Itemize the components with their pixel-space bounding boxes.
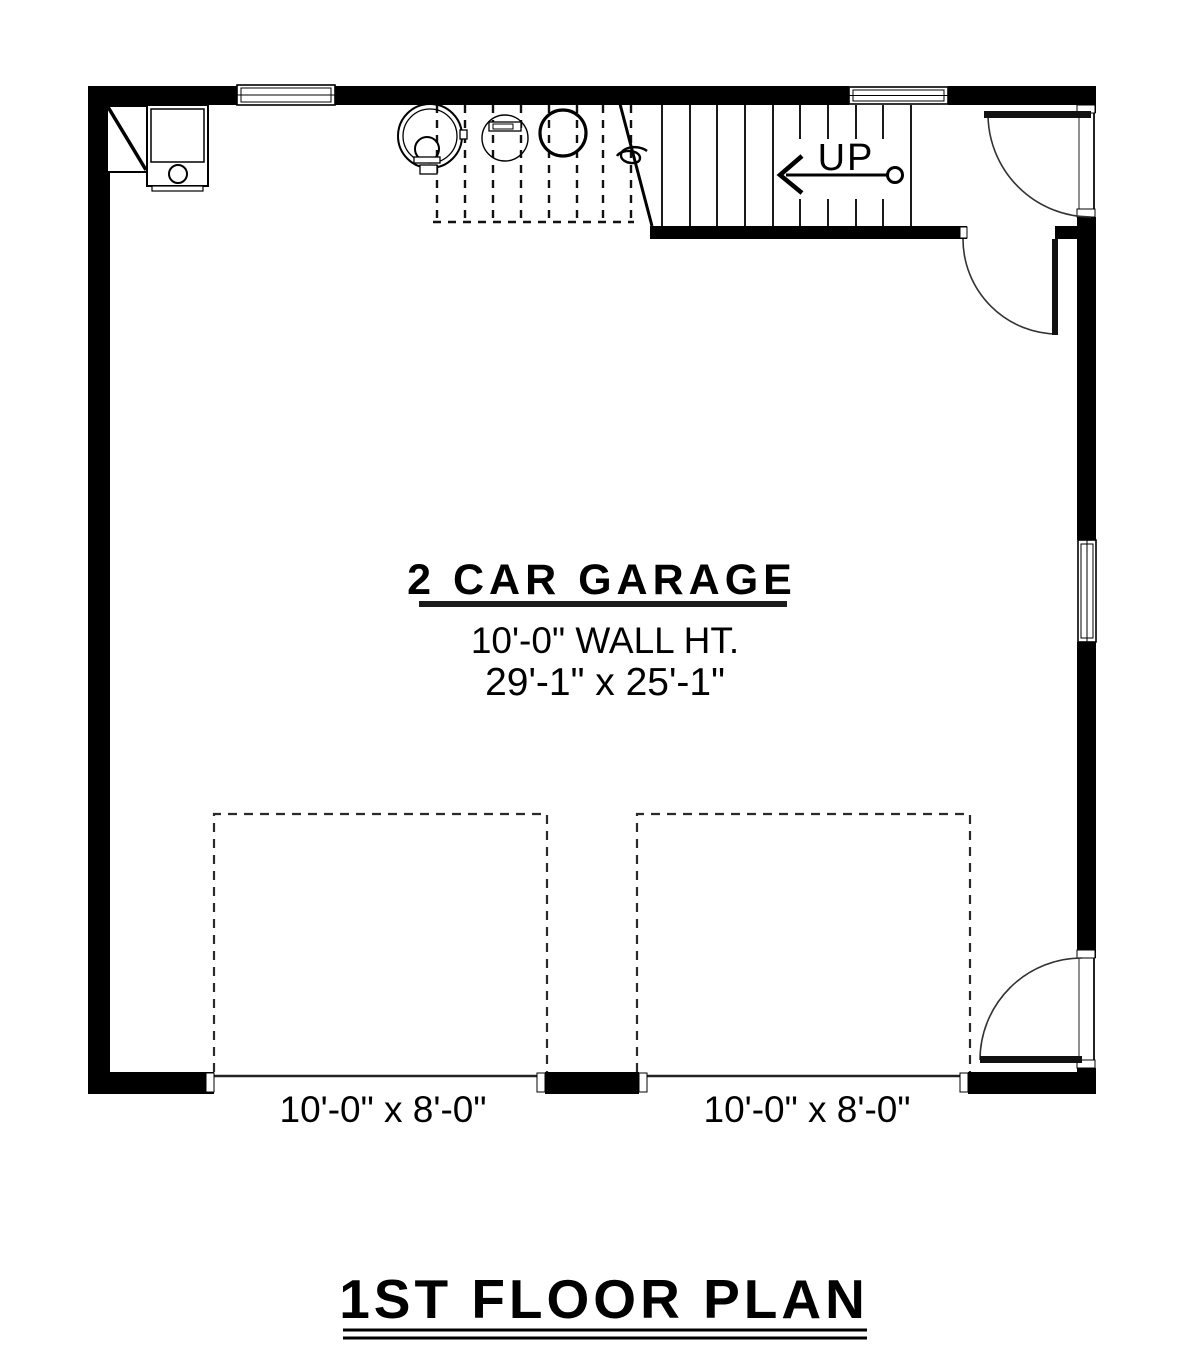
stairs-dashed-treads bbox=[433, 105, 634, 222]
stairs-break-line bbox=[617, 104, 652, 226]
window-top-left bbox=[237, 85, 335, 105]
floor-plan-sheet: UP bbox=[0, 0, 1200, 1369]
stair-door-hinge-stub bbox=[1055, 226, 1077, 239]
bottom-wall-right bbox=[968, 1072, 1096, 1094]
equipment bbox=[107, 104, 586, 191]
stair-wall bbox=[650, 226, 967, 239]
door-swing-arc bbox=[980, 958, 1082, 1060]
room-label-underline bbox=[419, 601, 787, 607]
right-wall-bottom bbox=[1077, 1068, 1096, 1094]
garage-door-left-outline bbox=[214, 814, 547, 1072]
floor-plan-drawing: UP bbox=[0, 0, 1200, 1369]
room-label: 2 CAR GARAGE bbox=[407, 556, 797, 604]
entry-door-top-right bbox=[984, 111, 1091, 217]
room-dimensions-label: 29'-1" x 25'-1" bbox=[485, 661, 725, 704]
window-right-wall bbox=[1078, 540, 1096, 642]
left-wall bbox=[88, 86, 110, 1094]
window-top-right bbox=[849, 87, 948, 104]
top-wall-middle bbox=[335, 86, 849, 105]
furnace-icon bbox=[147, 105, 208, 191]
right-wall-upper bbox=[1077, 217, 1096, 540]
sheet-title: 1ST FLOOR PLAN bbox=[339, 1268, 869, 1330]
bottom-wall-pier bbox=[545, 1072, 639, 1094]
garage-door-right-outline bbox=[637, 814, 970, 1072]
right-wall-lower bbox=[1077, 642, 1096, 958]
door-swing-arc bbox=[988, 114, 1091, 217]
garage-door-dashed-outlines bbox=[214, 814, 970, 1072]
wall-height-label: 10'-0" WALL HT. bbox=[471, 620, 739, 661]
service-door-bottom-right bbox=[980, 958, 1082, 1063]
top-wall-left bbox=[88, 86, 237, 105]
break-diagonal bbox=[620, 104, 652, 226]
stair-door bbox=[963, 239, 1058, 335]
door-panel bbox=[984, 111, 1091, 118]
garage-door-left-label: 10'-0" x 8'-0" bbox=[280, 1089, 487, 1130]
doors bbox=[963, 111, 1091, 1063]
stairs-up-label: UP bbox=[818, 137, 875, 179]
top-wall-right bbox=[948, 86, 1096, 105]
bottom-wall-left bbox=[88, 1072, 214, 1094]
up-arrow-origin bbox=[888, 168, 903, 183]
garage-door-right-label: 10'-0" x 8'-0" bbox=[704, 1089, 911, 1130]
sheet-title-block: 1ST FLOOR PLAN bbox=[339, 1268, 869, 1338]
water-heater-icon bbox=[398, 104, 467, 174]
door-panel bbox=[1052, 239, 1058, 335]
tank-icon bbox=[540, 110, 586, 156]
door-panel bbox=[980, 1056, 1082, 1063]
room-labels: 2 CAR GARAGE 10'-0" WALL HT. 29'-1" x 25… bbox=[280, 556, 911, 1130]
corner-chase-icon bbox=[107, 106, 147, 172]
door-swing-arc bbox=[963, 239, 1058, 334]
